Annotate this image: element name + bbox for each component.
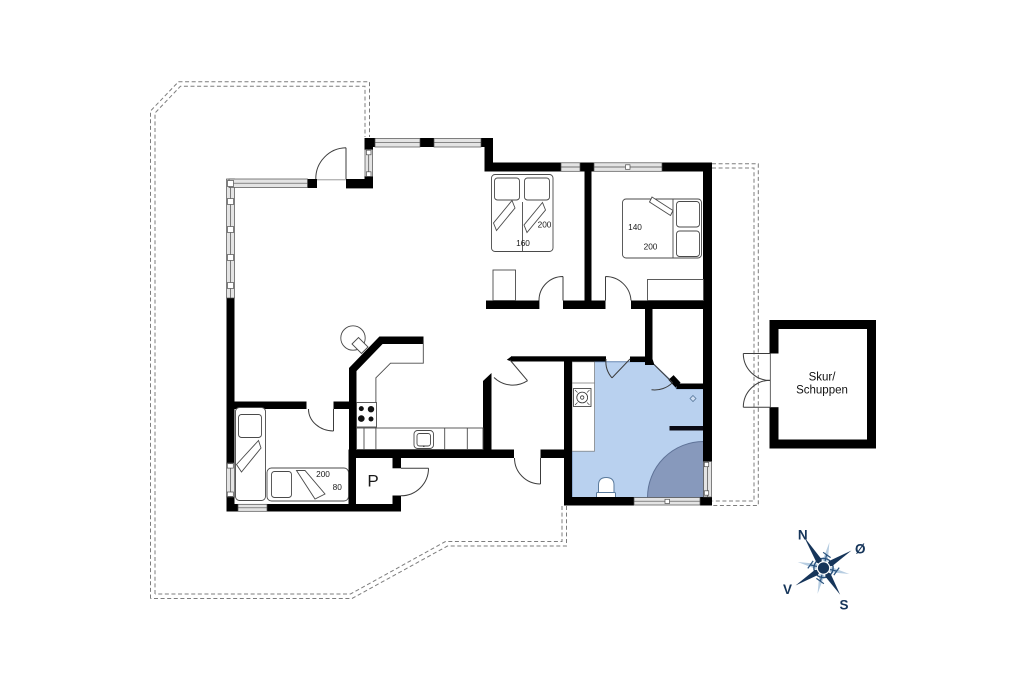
svg-text:140: 140 (628, 222, 642, 232)
svg-text:Schuppen: Schuppen (796, 385, 848, 397)
svg-text:N: N (798, 527, 808, 542)
svg-text:200: 200 (644, 242, 658, 252)
svg-text:Ø: Ø (855, 542, 866, 557)
svg-text:200: 200 (538, 220, 552, 230)
svg-text:Skur/: Skur/ (809, 372, 837, 384)
svg-text:P: P (367, 472, 378, 491)
svg-text:S: S (839, 598, 848, 613)
svg-text:80: 80 (333, 482, 343, 492)
svg-text:200: 200 (316, 469, 330, 479)
svg-text:V: V (783, 582, 792, 597)
svg-text:160: 160 (516, 238, 530, 248)
